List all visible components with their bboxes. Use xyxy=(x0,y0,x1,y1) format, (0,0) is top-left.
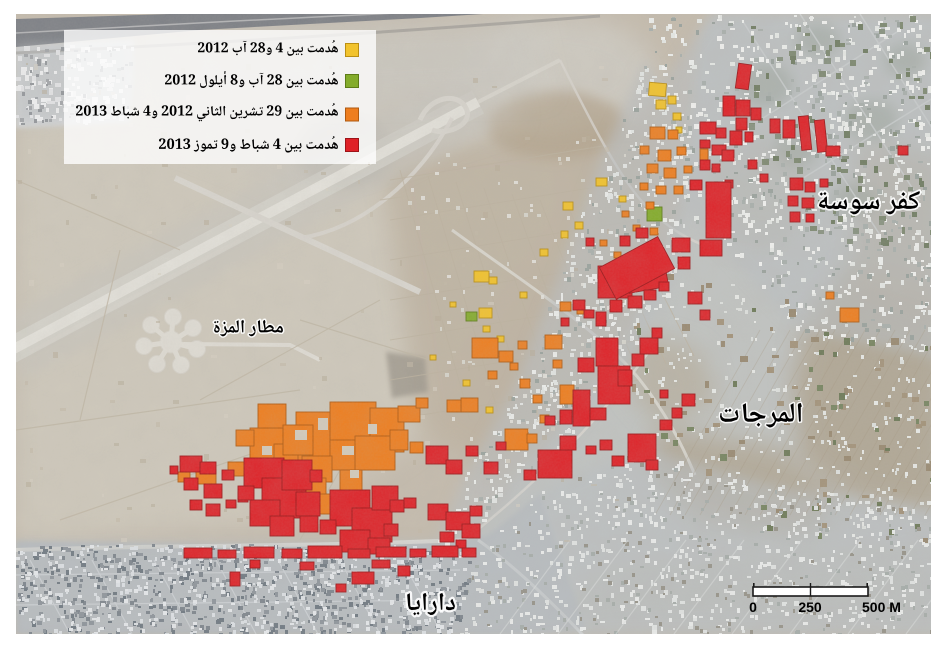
svg-text:250: 250 xyxy=(798,599,822,615)
svg-text:500 M: 500 M xyxy=(862,599,901,615)
svg-text:0: 0 xyxy=(749,599,757,615)
